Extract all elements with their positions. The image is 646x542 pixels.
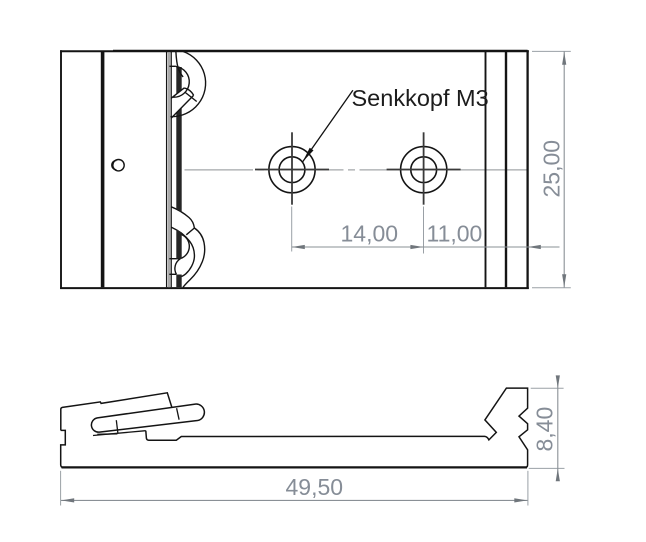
svg-text:25,00: 25,00 bbox=[539, 140, 565, 198]
svg-text:49,50: 49,50 bbox=[286, 474, 344, 500]
svg-text:11,00: 11,00 bbox=[427, 221, 483, 247]
svg-text:Senkkopf M3: Senkkopf M3 bbox=[352, 85, 489, 111]
svg-text:14,00: 14,00 bbox=[341, 221, 399, 247]
svg-text:8,40: 8,40 bbox=[532, 407, 558, 452]
